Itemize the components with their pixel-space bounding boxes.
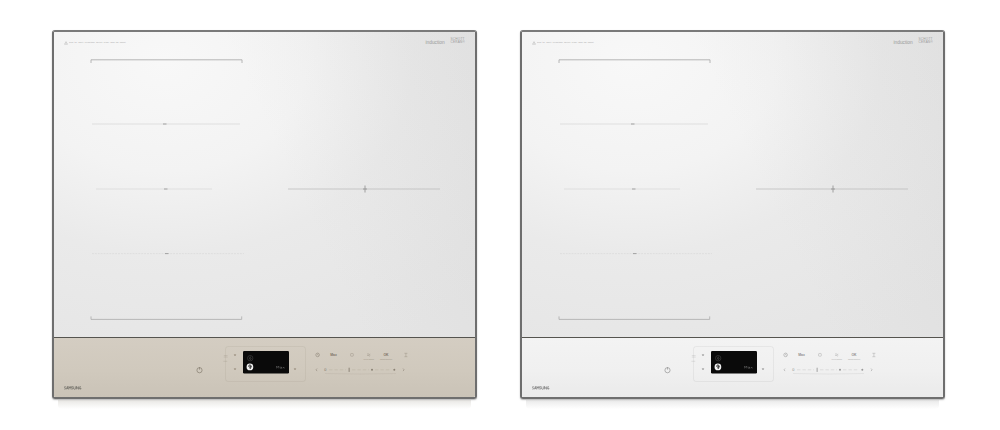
svg-text:Max: Max (330, 353, 337, 357)
svg-text:Keep warm: Keep warm (363, 358, 374, 360)
svg-text:0: 0 (792, 368, 794, 372)
svg-text:0: 0 (324, 368, 326, 372)
svg-text:Max: Max (798, 353, 805, 357)
svg-text:OK: OK (851, 353, 857, 357)
svg-text:OK: OK (383, 353, 389, 357)
svg-text:Keep warm: Keep warm (831, 358, 842, 360)
svg-text:SmartControl: SmartControl (380, 358, 393, 360)
svg-text:SmartControl: SmartControl (848, 358, 861, 360)
